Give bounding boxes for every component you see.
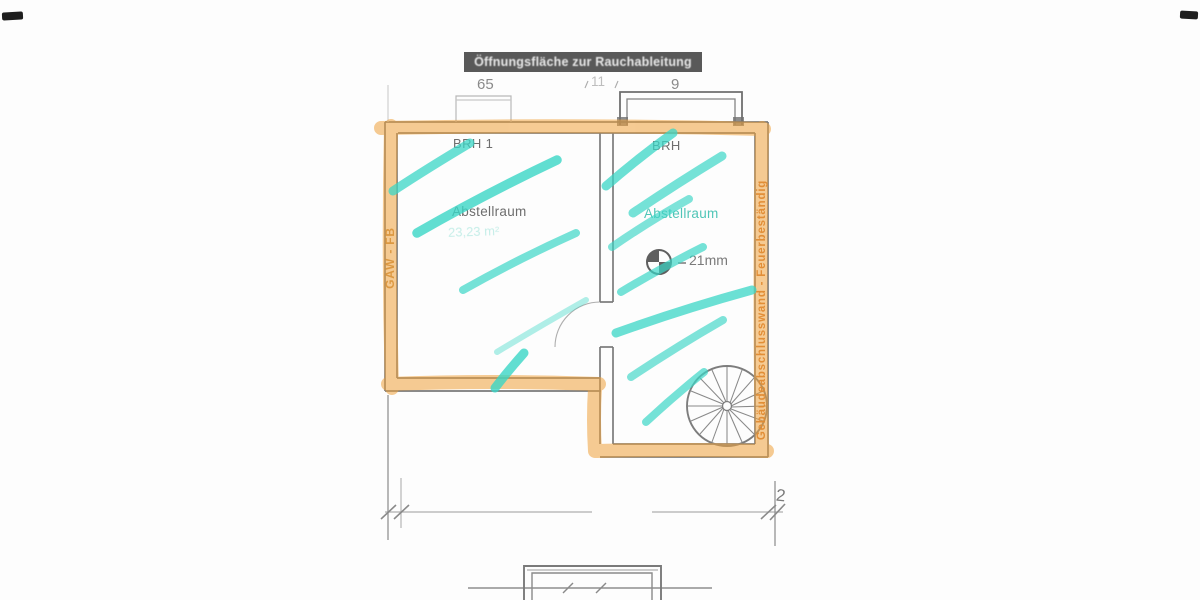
room-name-right: Abstellraum (644, 206, 719, 221)
dimension-label-2: 2 (775, 486, 787, 507)
window-sill-label-left: BRH 1 (453, 136, 493, 151)
wall-lines (385, 122, 768, 457)
material-thickness-label: 21mm (689, 252, 728, 268)
bottom-dimension (381, 395, 785, 546)
room-area-left: 23,23 m² (448, 223, 500, 240)
dimension-label-9: 9 (671, 76, 679, 93)
dimension-label-11: 11 (591, 74, 605, 89)
highlighter-marks (0, 0, 1200, 600)
scanned-floor-plan: Öffnungsfläche zur Rauchableitung 65 11 … (0, 0, 1200, 600)
room-name-left: Abstellraum (452, 204, 527, 219)
left-wall-annotation: GAW - FB (383, 198, 399, 318)
smoke-vent-header: Öffnungsfläche zur Rauchableitung (464, 52, 702, 72)
right-wall-annotation: Gebäudeabschlusswand - Feuerbeständig (756, 165, 772, 455)
door-swing-arc (555, 302, 600, 347)
spiral-staircase-icon (687, 366, 767, 446)
center-point-icon (646, 249, 672, 275)
dimension-label-65: 65 (477, 76, 494, 93)
floorplan-linework (0, 0, 1200, 600)
wall-joint (733, 117, 744, 126)
scan-artifact-mark (2, 11, 23, 20)
bottom-feature-outline (468, 566, 712, 600)
window-sill-label-right: BRH (652, 138, 681, 153)
smoke-vent-header-label: Öffnungsfläche zur Rauchableitung (474, 55, 692, 69)
scan-artifact-mark (1180, 11, 1198, 20)
orange-wall-highlights (381, 126, 767, 451)
teal-marker-strokes (393, 133, 752, 422)
top-shaft-outline (620, 92, 742, 125)
top-window-outline (456, 96, 511, 122)
wall-joint (617, 117, 628, 126)
